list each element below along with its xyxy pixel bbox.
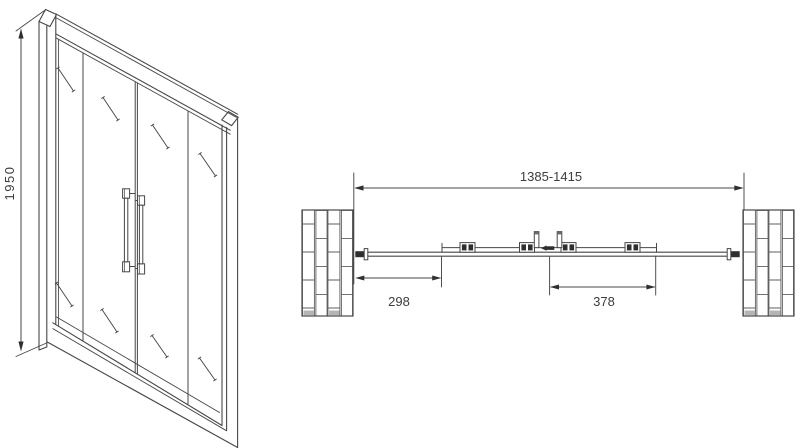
left-offset-dimension-label: 298 <box>388 294 410 309</box>
roller-clamp <box>460 243 475 253</box>
technical-drawing-page: 1950 1385-1415 298 378 <box>0 0 800 448</box>
wall-shading <box>770 311 781 316</box>
dim-arrow-up <box>18 29 23 39</box>
left-post <box>39 10 57 351</box>
dim-arrow-left <box>550 285 559 290</box>
width-dimension <box>354 173 744 284</box>
dim-arrow-left <box>354 185 363 190</box>
elevation-view <box>16 10 238 448</box>
left-wall <box>302 210 353 316</box>
wall-shading <box>329 311 340 316</box>
panel-width-dimension <box>550 256 656 295</box>
wall-bracket-right <box>727 249 740 260</box>
roller-clamp <box>520 243 535 253</box>
wall-bracket-left <box>355 249 368 260</box>
glass-marks <box>57 68 216 380</box>
wall-shading <box>745 311 756 316</box>
left-offset-dimension <box>355 257 441 287</box>
height-dimension-label: 1950 <box>2 166 17 201</box>
roller-clamp <box>625 243 640 253</box>
plan-handles <box>534 232 562 251</box>
shower-door-technical-drawing: 1950 1385-1415 298 378 <box>0 0 800 448</box>
height-dimension <box>16 11 47 357</box>
panel-width-dimension-label: 378 <box>593 294 615 309</box>
wall-shading <box>304 311 315 316</box>
plan-view <box>302 173 794 316</box>
panel-division-lines <box>59 39 189 405</box>
right-wall <box>743 210 794 316</box>
roller-clamp <box>561 243 576 253</box>
dim-arrow-right <box>734 185 743 190</box>
dim-arrow-down <box>18 342 23 352</box>
right-post <box>222 118 238 448</box>
dim-arrow-left <box>355 276 364 281</box>
bottom-rail <box>47 317 237 448</box>
handle-left <box>123 189 135 272</box>
center-overlap-marker <box>541 246 547 251</box>
dim-arrow-right <box>646 285 655 290</box>
dim-arrow-right <box>432 276 441 281</box>
overall-width-dimension-label: 1385-1415 <box>520 169 582 184</box>
